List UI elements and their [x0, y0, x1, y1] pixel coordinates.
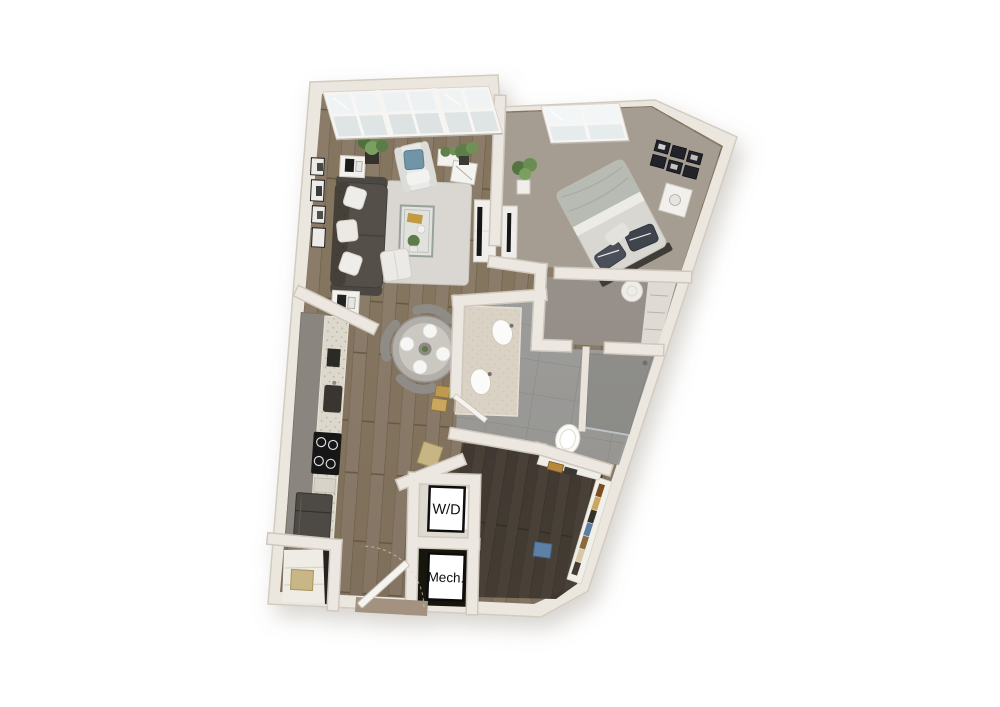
- entry-closet: [282, 549, 332, 604]
- round-stool: [622, 281, 643, 302]
- teal-pillow: [404, 149, 425, 170]
- end-table: [339, 155, 365, 177]
- dresser-with-tv: [502, 206, 518, 258]
- mechanical-label-text: Mech.: [427, 569, 464, 585]
- apartment-plan: W/D Mech.: [250, 60, 770, 640]
- shower-half-wall: [582, 350, 586, 428]
- sofa-pillow: [336, 219, 358, 242]
- dishwasher: [314, 478, 336, 493]
- tv: [507, 213, 512, 252]
- ottoman: [380, 248, 412, 282]
- kitchen-sink: [322, 380, 343, 413]
- coffee-maker: [326, 348, 340, 367]
- shower-head: [643, 361, 648, 366]
- basket: [290, 569, 313, 590]
- washer-dryer-label: W/D: [428, 486, 465, 531]
- floor-plan-page: W/D Mech.: [0, 0, 1000, 707]
- washer-dryer-label-text: W/D: [432, 502, 461, 519]
- tv: [477, 207, 483, 256]
- bedroom-window: [541, 103, 629, 144]
- decor-dish: [417, 225, 425, 233]
- living-room-windows: [323, 86, 503, 140]
- mechanical-label: Mech.: [427, 553, 465, 600]
- storage-bin: [533, 542, 552, 558]
- cooktop: [311, 432, 342, 476]
- sofa: [330, 175, 388, 297]
- floor-plan-render: W/D Mech.: [0, 0, 1000, 707]
